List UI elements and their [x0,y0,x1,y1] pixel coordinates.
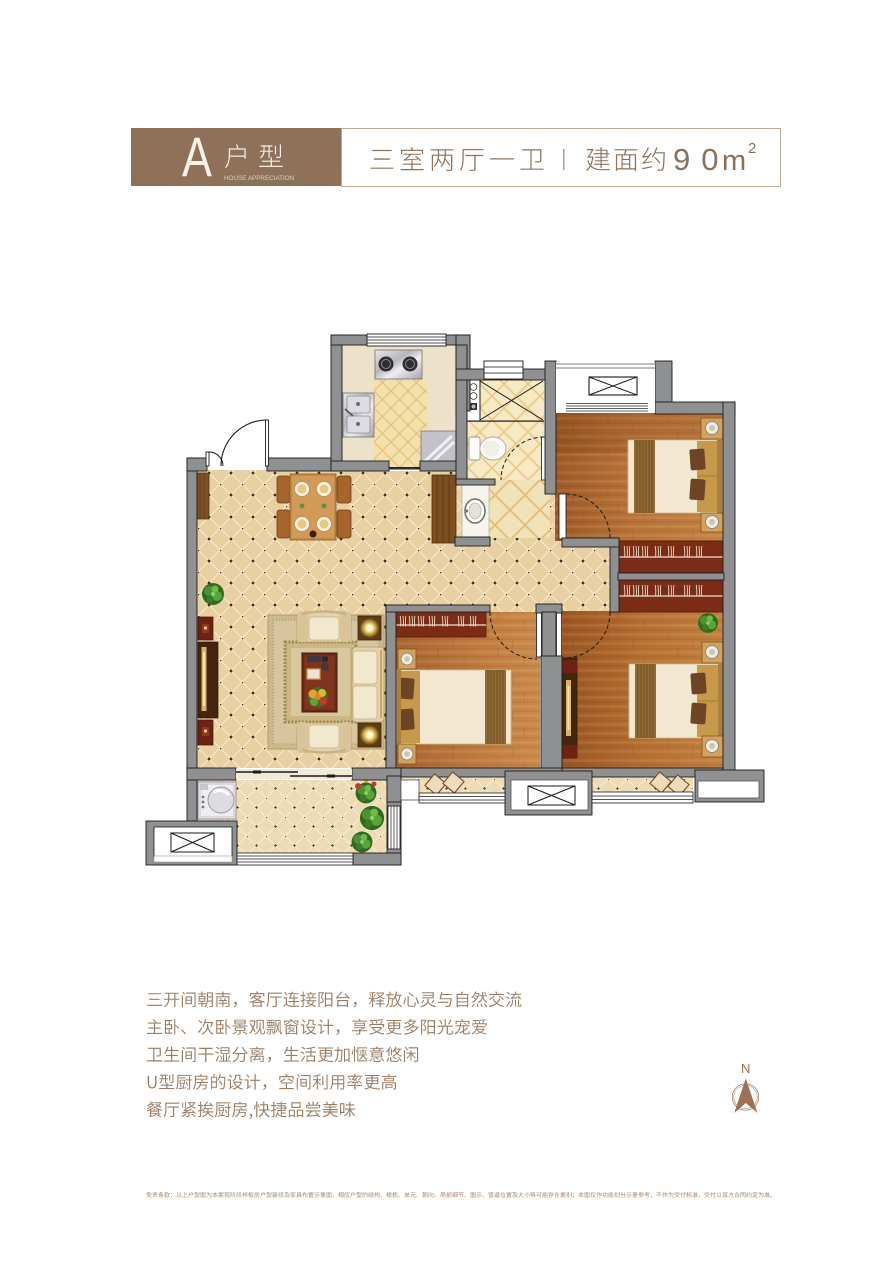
svg-text:A: A [182,125,212,188]
svg-text:HOUSE APPRECIATION: HOUSE APPRECIATION [224,175,295,182]
svg-text:2: 2 [748,140,756,157]
svg-text:90: 90 [673,142,729,177]
svg-text:m: m [722,145,746,177]
svg-text:N: N [741,1061,750,1076]
